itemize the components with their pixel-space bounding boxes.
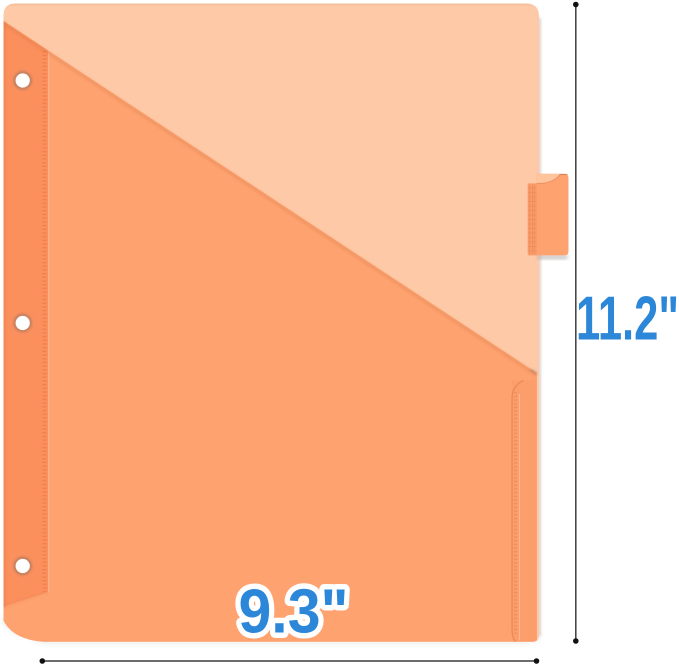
svg-text:9.3": 9.3" xyxy=(239,577,349,647)
svg-text:11.2": 11.2" xyxy=(576,284,679,354)
